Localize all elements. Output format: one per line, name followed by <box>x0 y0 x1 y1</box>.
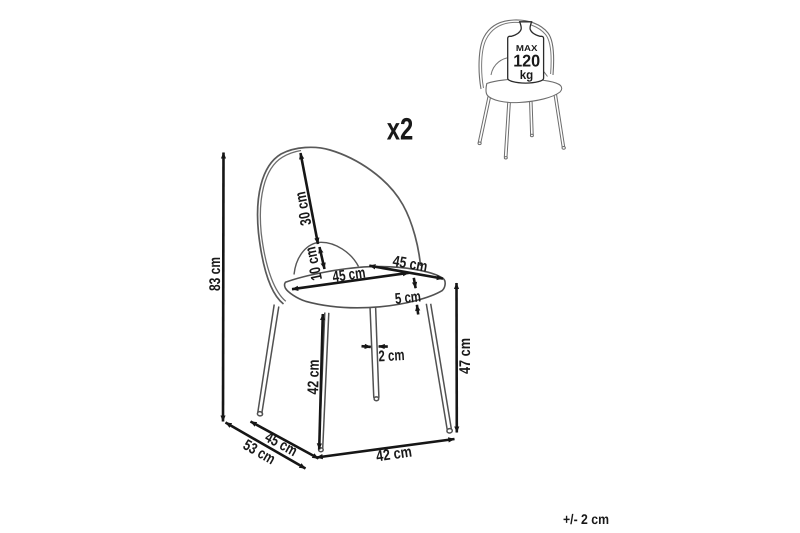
svg-text:kg: kg <box>520 68 534 82</box>
svg-text:83 cm: 83 cm <box>207 257 224 291</box>
svg-text:x2: x2 <box>387 112 414 147</box>
svg-text:2 cm: 2 cm <box>378 347 405 365</box>
svg-text:42 cm: 42 cm <box>305 359 323 394</box>
svg-text:+/- 2 cm: +/- 2 cm <box>563 511 609 527</box>
svg-text:47 cm: 47 cm <box>457 338 474 374</box>
